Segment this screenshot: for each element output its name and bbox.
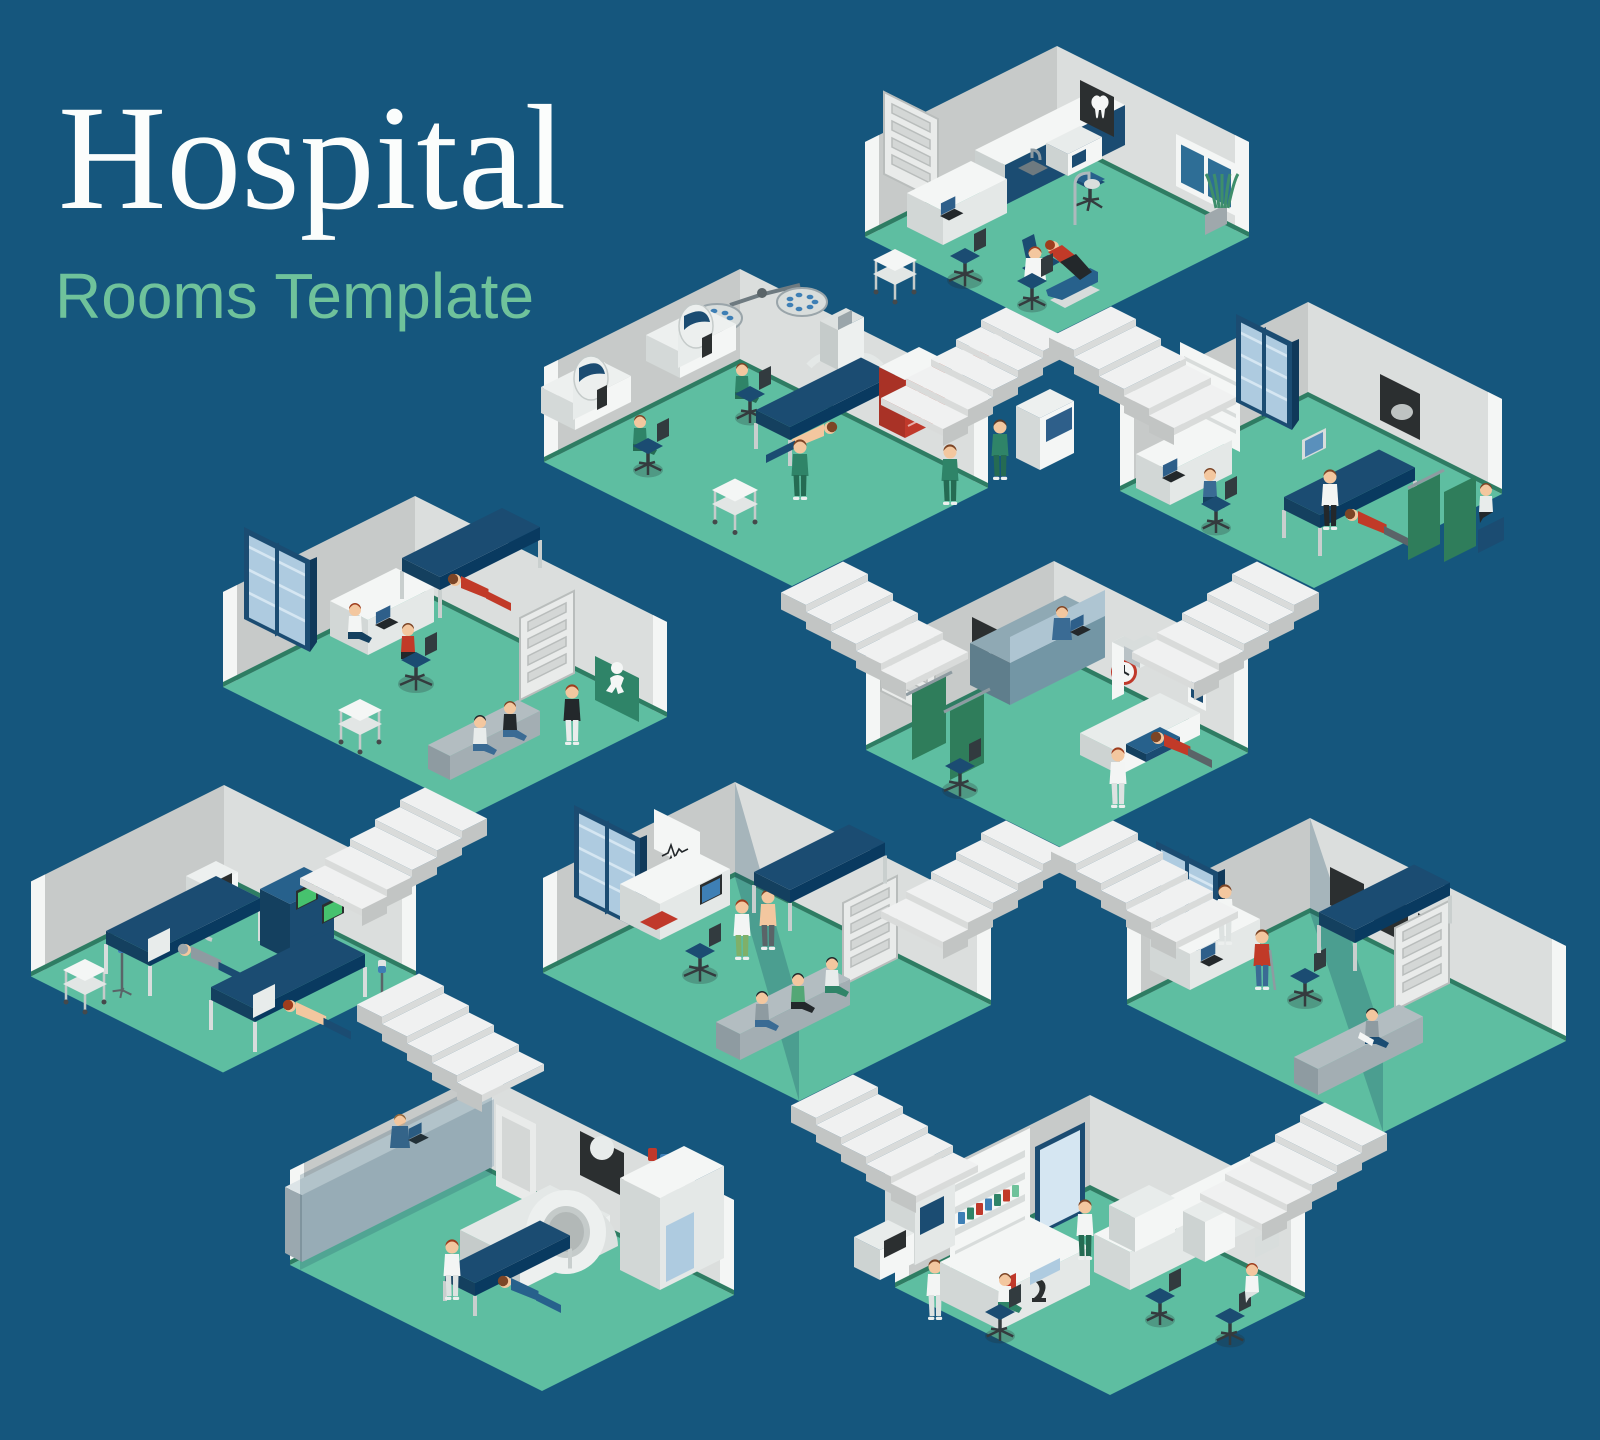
svg-text:Rooms Template: Rooms Template (55, 260, 534, 332)
svg-text:Hospital: Hospital (58, 75, 566, 241)
